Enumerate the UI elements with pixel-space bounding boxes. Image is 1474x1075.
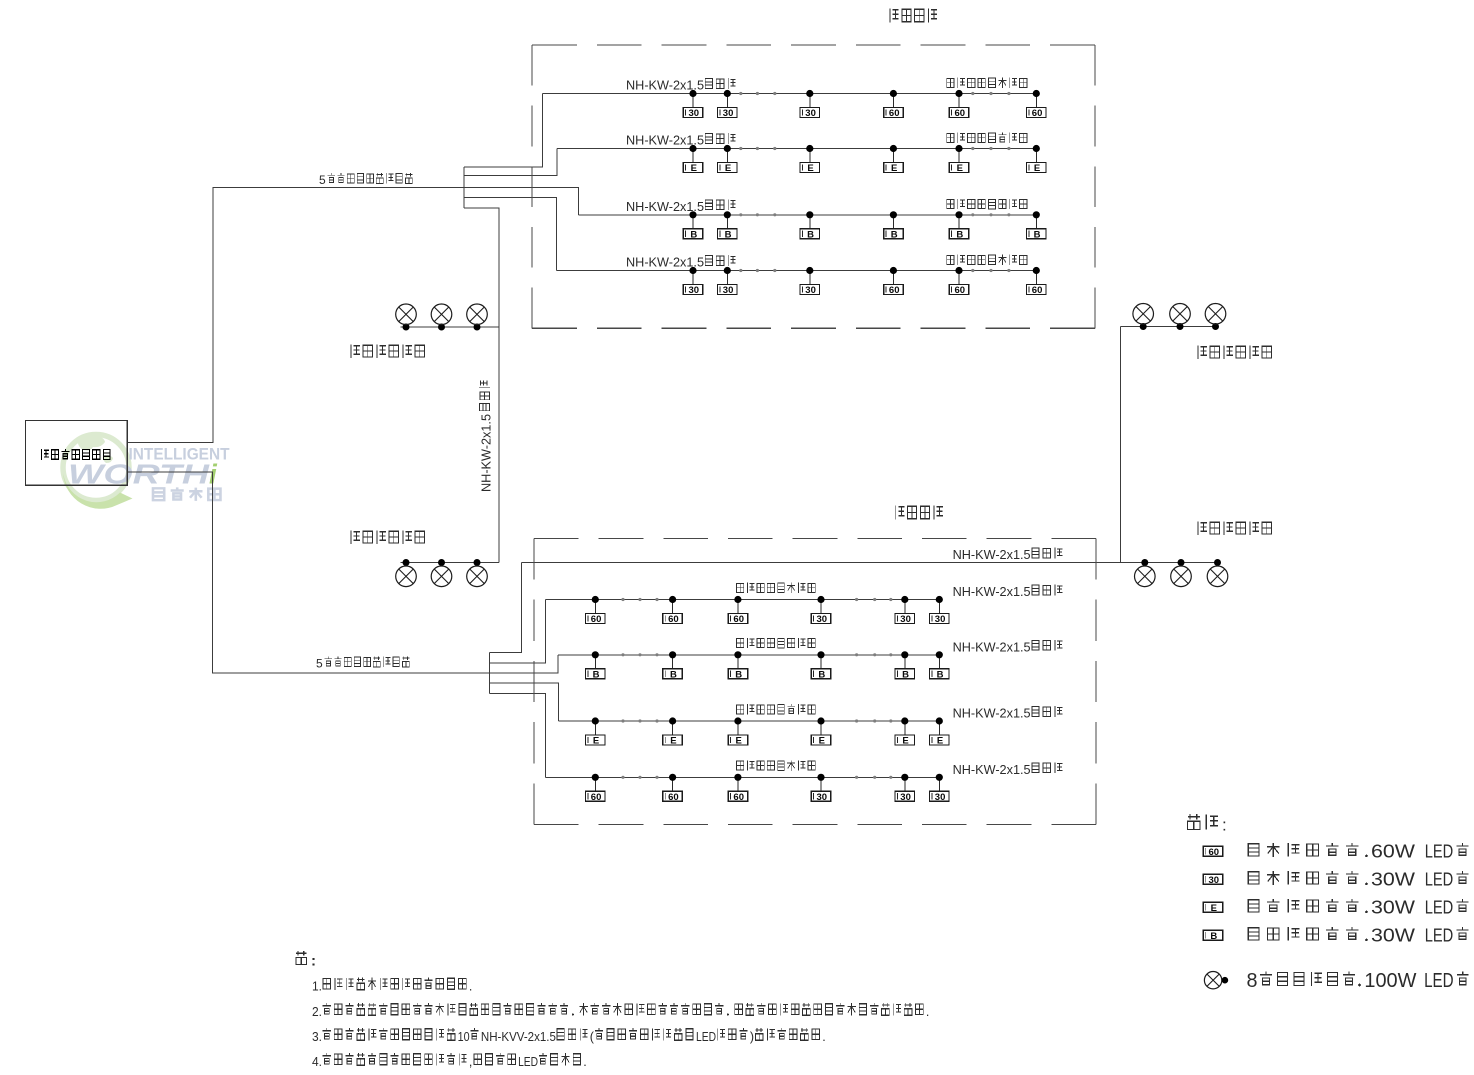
- svg-text:LED: LED: [518, 1055, 538, 1069]
- svg-text:B: B: [937, 670, 944, 681]
- svg-text:LED: LED: [696, 1030, 716, 1044]
- svg-text:.: .: [926, 1005, 929, 1019]
- svg-text:B: B: [735, 670, 742, 681]
- svg-text:B: B: [956, 230, 963, 241]
- svg-text:B: B: [690, 230, 697, 241]
- svg-text:LED: LED: [1425, 841, 1454, 861]
- svg-text:): ): [750, 1030, 754, 1044]
- svg-text:LED: LED: [1425, 925, 1454, 945]
- svg-text::: :: [311, 953, 316, 970]
- svg-text:30: 30: [935, 614, 946, 625]
- svg-text:E: E: [819, 736, 825, 747]
- svg-text:60: 60: [733, 792, 744, 803]
- svg-text:B: B: [1210, 931, 1217, 942]
- svg-text:60: 60: [889, 285, 900, 296]
- svg-text:NH-KW-2x1.5: NH-KW-2x1.5: [953, 763, 1031, 777]
- svg-text:B: B: [1034, 230, 1041, 241]
- svg-text:NH-KW-2x1.5: NH-KW-2x1.5: [953, 585, 1031, 599]
- svg-text:.: .: [822, 1030, 825, 1044]
- svg-text:B: B: [902, 670, 909, 681]
- svg-text:60: 60: [1209, 847, 1220, 858]
- svg-text:30W: 30W: [1371, 897, 1415, 917]
- svg-text:E: E: [1034, 163, 1040, 174]
- svg-text:60: 60: [955, 108, 966, 119]
- svg-text::: :: [1222, 816, 1227, 835]
- svg-text:4.: 4.: [312, 1055, 322, 1069]
- svg-text:1.: 1.: [312, 980, 322, 994]
- svg-text:LED: LED: [1425, 869, 1454, 889]
- svg-text:30: 30: [817, 614, 828, 625]
- svg-text:NH-KW-2x1.5: NH-KW-2x1.5: [626, 134, 704, 148]
- svg-text:5: 5: [316, 657, 323, 671]
- svg-text:.: .: [469, 980, 472, 994]
- svg-text:B: B: [593, 670, 600, 681]
- svg-text:30: 30: [805, 285, 816, 296]
- svg-text:30: 30: [805, 108, 816, 119]
- svg-text:NH-KW-2x1.5: NH-KW-2x1.5: [953, 640, 1031, 654]
- svg-text:E: E: [902, 736, 908, 747]
- svg-text:5: 5: [319, 173, 326, 187]
- svg-text:NH-KW-2x1.5: NH-KW-2x1.5: [953, 707, 1031, 721]
- svg-text:E: E: [593, 736, 599, 747]
- svg-text:NH-KW-2x1.5: NH-KW-2x1.5: [953, 548, 1031, 562]
- svg-text:3.: 3.: [312, 1030, 322, 1044]
- svg-text:NH-KVV-2x1.5: NH-KVV-2x1.5: [481, 1030, 556, 1044]
- svg-text:NH-KW-2x1.5: NH-KW-2x1.5: [626, 256, 704, 270]
- svg-text:E: E: [691, 163, 697, 174]
- svg-text:E: E: [957, 163, 963, 174]
- svg-text:100W: 100W: [1364, 970, 1416, 992]
- svg-text:30W: 30W: [1371, 925, 1415, 945]
- svg-text:30: 30: [689, 108, 700, 119]
- svg-text:60: 60: [1032, 285, 1043, 296]
- svg-text:30W: 30W: [1371, 869, 1415, 889]
- svg-text:60: 60: [591, 792, 602, 803]
- svg-text:30: 30: [689, 285, 700, 296]
- svg-text:LED: LED: [1424, 970, 1454, 992]
- svg-text:.: .: [583, 1055, 586, 1069]
- svg-text:60: 60: [1032, 108, 1043, 119]
- svg-text:60: 60: [733, 614, 744, 625]
- svg-text:30: 30: [817, 792, 828, 803]
- svg-text:B: B: [891, 230, 898, 241]
- svg-text:2.: 2.: [312, 1005, 322, 1019]
- svg-text:E: E: [736, 736, 742, 747]
- svg-text:30: 30: [1209, 875, 1220, 886]
- svg-text:60: 60: [668, 792, 679, 803]
- svg-text:NH-KW-2x1.5: NH-KW-2x1.5: [480, 414, 494, 492]
- svg-text:B: B: [725, 230, 732, 241]
- svg-text:10: 10: [458, 1030, 470, 1044]
- svg-text:B: B: [670, 670, 677, 681]
- svg-text:E: E: [891, 163, 897, 174]
- svg-text:NH-KW-2x1.5: NH-KW-2x1.5: [626, 79, 704, 93]
- svg-text:30: 30: [935, 792, 946, 803]
- svg-text:B: B: [818, 670, 825, 681]
- svg-text:60W: 60W: [1371, 841, 1415, 861]
- svg-text:30: 30: [900, 614, 911, 625]
- svg-text:30: 30: [723, 108, 734, 119]
- svg-text:i: i: [209, 459, 218, 490]
- svg-text:E: E: [807, 163, 813, 174]
- svg-text:B: B: [807, 230, 814, 241]
- svg-text:,: ,: [469, 1055, 472, 1069]
- svg-text:30: 30: [900, 792, 911, 803]
- svg-text:E: E: [725, 163, 731, 174]
- svg-text:NH-KW-2x1.5: NH-KW-2x1.5: [626, 200, 704, 214]
- svg-text:60: 60: [591, 614, 602, 625]
- svg-text:60: 60: [668, 614, 679, 625]
- svg-text:30: 30: [723, 285, 734, 296]
- svg-text:LED: LED: [1425, 897, 1454, 917]
- svg-text:E: E: [937, 736, 943, 747]
- svg-text:E: E: [670, 736, 676, 747]
- svg-text:E: E: [1211, 903, 1217, 914]
- svg-text:8: 8: [1247, 970, 1258, 992]
- svg-text:60: 60: [889, 108, 900, 119]
- svg-text:60: 60: [955, 285, 966, 296]
